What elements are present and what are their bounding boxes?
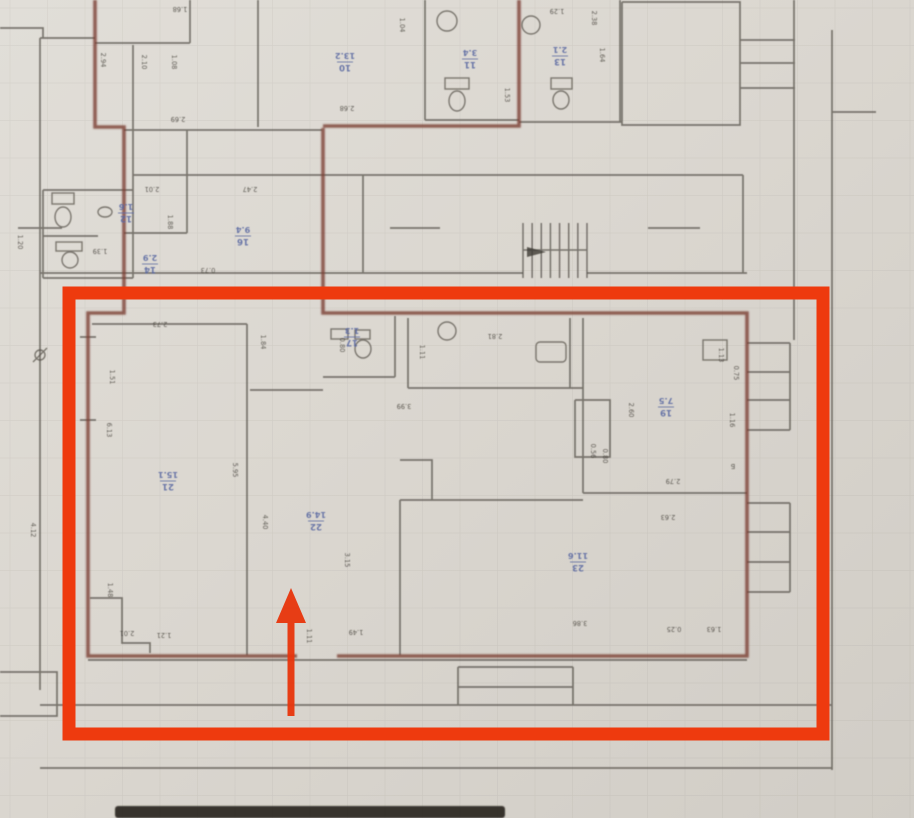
svg-text:19: 19 bbox=[660, 407, 672, 417]
dimension-label: 1.53 bbox=[503, 88, 511, 103]
svg-text:3.4: 3.4 bbox=[462, 48, 477, 58]
svg-text:11.6: 11.6 bbox=[568, 551, 589, 561]
dimension-label: 5.95 bbox=[231, 463, 239, 478]
dimension-label: Б bbox=[730, 462, 735, 470]
svg-text:21: 21 bbox=[162, 481, 174, 491]
svg-text:14.9: 14.9 bbox=[306, 510, 327, 520]
dimension-label: 1.84 bbox=[259, 335, 267, 350]
dimension-label: 0.56 bbox=[589, 444, 597, 459]
dimension-label: 6.13 bbox=[105, 423, 113, 438]
svg-text:22: 22 bbox=[310, 521, 322, 531]
dimension-label: 2.68 bbox=[340, 104, 355, 112]
paper-background bbox=[0, 0, 914, 818]
room-label: 142.9 bbox=[142, 253, 158, 274]
svg-text:15.1: 15.1 bbox=[158, 470, 179, 480]
svg-text:7.5: 7.5 bbox=[658, 396, 673, 406]
svg-text:14: 14 bbox=[144, 264, 156, 274]
dimension-label: 1.29 bbox=[550, 7, 565, 15]
dimension-label: 0.75 bbox=[732, 366, 740, 381]
dimension-label: 3.99 bbox=[397, 402, 412, 410]
dimension-label: 0.25 bbox=[667, 625, 682, 633]
dimension-label: 2.79 bbox=[666, 477, 681, 485]
svg-text:13: 13 bbox=[554, 56, 566, 66]
dimension-label: 1.39 bbox=[93, 247, 108, 255]
dimension-label: 1.48 bbox=[106, 583, 114, 598]
dimension-label: 0.80 bbox=[601, 449, 609, 464]
svg-text:16: 16 bbox=[237, 236, 249, 246]
dimension-label: 4.12 bbox=[29, 523, 37, 538]
svg-text:9.4: 9.4 bbox=[235, 225, 250, 235]
svg-text:1.6: 1.6 bbox=[118, 202, 133, 212]
dimension-label: 1.08 bbox=[170, 55, 178, 70]
dimension-label: 1.63 bbox=[707, 625, 722, 633]
dimension-label: 4.40 bbox=[261, 515, 269, 530]
svg-text:2.1: 2.1 bbox=[552, 45, 567, 55]
dimension-label: 1.21 bbox=[157, 631, 172, 639]
dimension-label: 1.88 bbox=[166, 215, 174, 230]
dimension-label: 1.11 bbox=[418, 345, 426, 360]
dimension-label: 1.64 bbox=[598, 48, 606, 63]
dimension-label: 2.73 bbox=[153, 320, 168, 328]
room-label: 197.5 bbox=[658, 396, 674, 417]
dimension-label: 3.15 bbox=[343, 553, 351, 568]
svg-text:10: 10 bbox=[339, 62, 351, 72]
dimension-label: 2.60 bbox=[627, 403, 635, 418]
photo-dark-band bbox=[115, 806, 505, 818]
dimension-label: 2.10 bbox=[140, 55, 148, 70]
dimension-label: 1.13 bbox=[717, 348, 725, 363]
dimension-label: 1.68 bbox=[173, 5, 188, 13]
dimension-label: 2.81 bbox=[488, 332, 503, 340]
room-label: 132.1 bbox=[552, 45, 568, 66]
dimension-label: 2.47 bbox=[243, 185, 258, 193]
dimension-label: 1.51 bbox=[108, 370, 116, 385]
svg-text:17: 17 bbox=[346, 337, 358, 347]
floor-plan-photo: 2115.12214.9171.3197.52311.61013.2113.41… bbox=[0, 0, 914, 818]
svg-text:1.3: 1.3 bbox=[344, 326, 359, 336]
dimension-label: 1.20 bbox=[16, 235, 24, 250]
floor-plan-svg: 2115.12214.9171.3197.52311.61013.2113.41… bbox=[0, 0, 914, 818]
svg-text:2.9: 2.9 bbox=[142, 253, 157, 263]
dimension-label: 1.49 bbox=[349, 628, 364, 636]
dimension-label: 2.38 bbox=[590, 11, 598, 26]
dimension-label: 2.01 bbox=[120, 629, 135, 637]
room-label: 121.6 bbox=[118, 202, 134, 223]
dimension-label: 3.86 bbox=[573, 619, 588, 627]
dimension-label: 0.80 bbox=[338, 338, 346, 353]
svg-text:23: 23 bbox=[572, 562, 584, 572]
svg-text:11: 11 bbox=[464, 59, 476, 69]
svg-text:13.2: 13.2 bbox=[335, 51, 355, 61]
dimension-label: 2.94 bbox=[99, 53, 107, 68]
room-label: 113.4 bbox=[462, 48, 478, 69]
svg-text:12: 12 bbox=[120, 213, 132, 223]
dimension-label: 0.73 bbox=[201, 266, 216, 274]
room-label: 169.4 bbox=[235, 225, 251, 246]
dimension-label: 1.11 bbox=[305, 629, 313, 644]
dimension-label: 2.63 bbox=[661, 513, 676, 521]
dimension-label: 2.69 bbox=[171, 115, 186, 123]
dimension-label: 2.01 bbox=[145, 185, 160, 193]
dimension-label: 1.04 bbox=[398, 18, 406, 33]
dimension-label: 1.16 bbox=[728, 413, 736, 428]
